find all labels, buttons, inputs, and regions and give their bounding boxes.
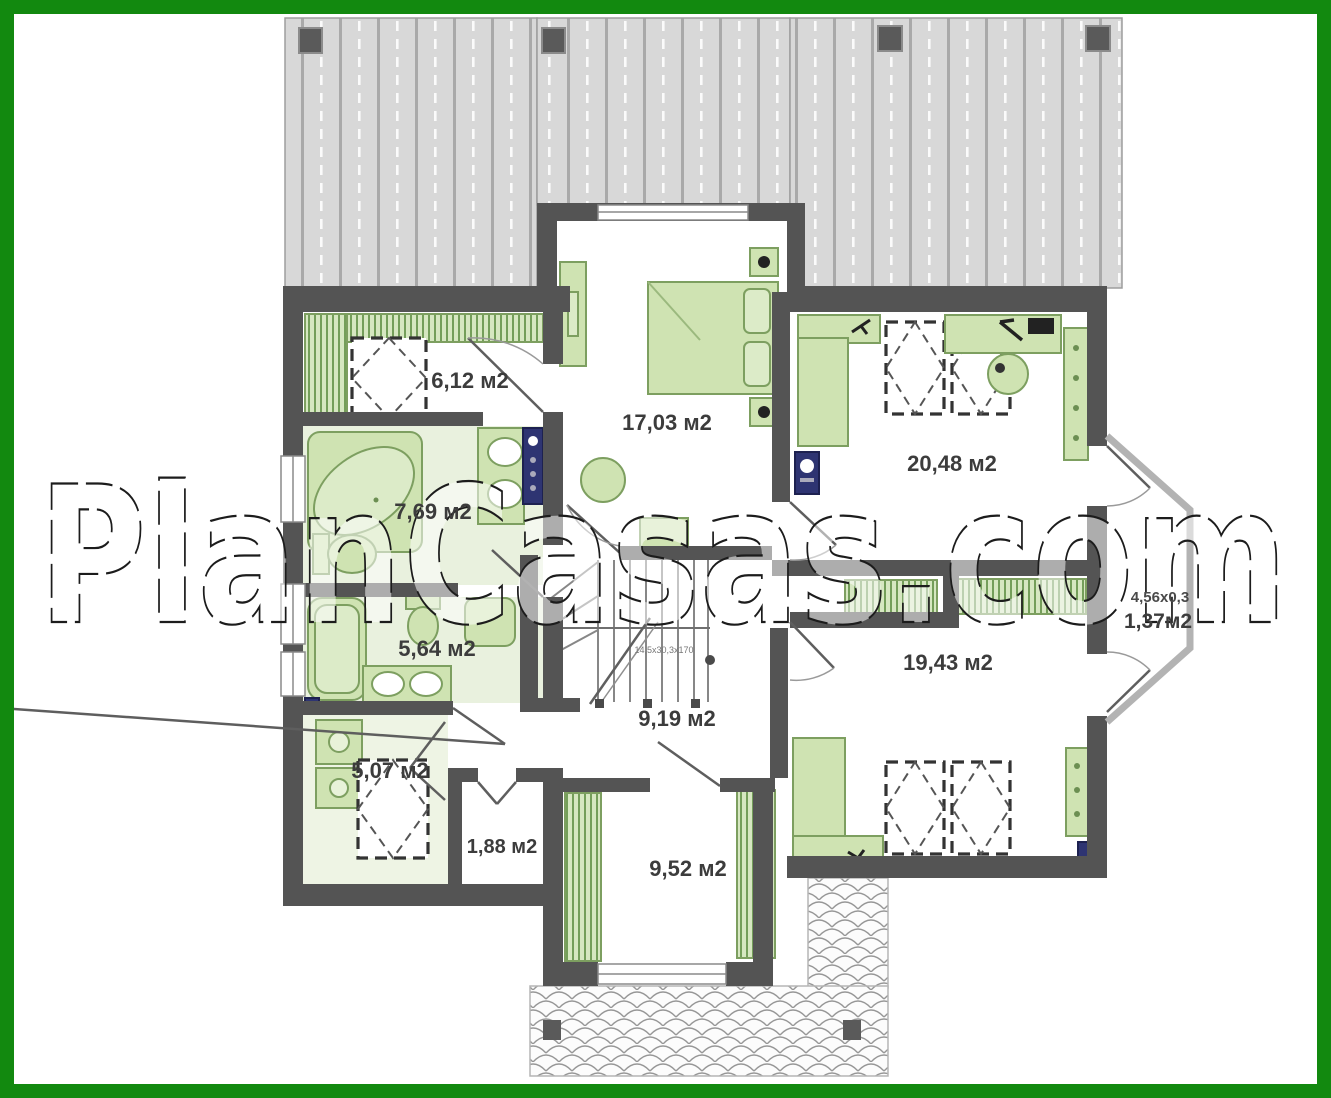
room-label-closet: 6,12 м2 [431, 368, 508, 393]
stair-dimension-note: 14,5x30,3x170 [634, 645, 693, 655]
room-label-bathroom-second: 5,64 м2 [398, 636, 475, 661]
floor-plan-svg: PlanCasas.com 6,12 м2 7,69 м2 5,64 м2 5,… [0, 0, 1331, 1098]
door-leaf [658, 742, 720, 786]
floor-plan-page: PlanCasas.com 6,12 м2 7,69 м2 5,64 м2 5,… [0, 0, 1331, 1098]
room-label-bedroom-top-right: 20,48 м2 [907, 451, 997, 476]
balcony-area-label: 1,37м2 [1124, 610, 1192, 633]
closet-shelving [305, 314, 543, 418]
wardrobe [560, 262, 586, 366]
door-leaf [478, 782, 497, 804]
dresser [1066, 748, 1088, 836]
room-label-storage: 1,88 м2 [467, 836, 537, 858]
terrace-post [543, 1020, 561, 1040]
dresser [1064, 328, 1088, 460]
room-label-dressing: 9,52 м2 [649, 856, 726, 881]
room-label-bedroom-bottom-right: 19,43 м2 [903, 650, 993, 675]
watermark-text: PlanCasas.com [38, 446, 1288, 667]
roof-left-section [285, 18, 537, 288]
desk [945, 315, 1061, 353]
room-label-bedroom-top-center: 17,03 м2 [622, 410, 712, 435]
watermark: PlanCasas.com [38, 446, 1288, 667]
skylight [352, 338, 426, 418]
double-bed [648, 282, 778, 394]
single-bed [798, 338, 848, 446]
room-label-laundry: 5,07 м2 [351, 758, 428, 783]
balcony-dimension-label: 4,56x0,3 [1131, 589, 1189, 606]
skylight [886, 762, 1010, 854]
roof-center-section [537, 18, 790, 205]
room-label-stair-hall: 9,19 м2 [638, 706, 715, 731]
single-bed [793, 738, 883, 870]
room-label-bathroom-main: 7,69 м2 [394, 499, 471, 524]
window [598, 205, 748, 220]
chair [988, 354, 1028, 394]
window [598, 964, 726, 984]
terrace-post [843, 1020, 861, 1040]
roof-right-section [790, 18, 1122, 288]
double-sink [363, 666, 451, 702]
roof [285, 18, 1122, 288]
